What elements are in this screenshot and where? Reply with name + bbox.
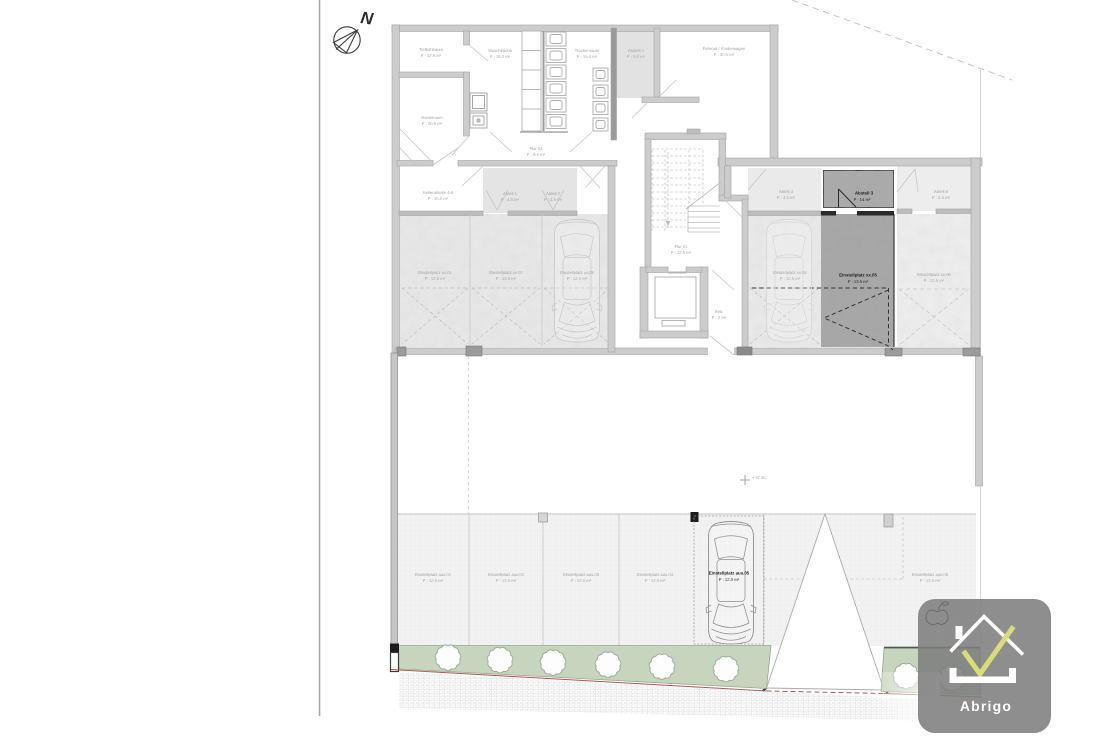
svg-text:Abteil 1: Abteil 1: [503, 191, 518, 196]
svg-text:F : 12.5 m²: F : 12.5 m²: [780, 276, 801, 281]
svg-text:F : 12.0 m²: F : 12.0 m²: [571, 578, 592, 583]
svg-text:F : 5.0 m²: F : 5.0 m²: [627, 54, 646, 59]
svg-text:Abteil 6: Abteil 6: [934, 189, 949, 194]
svg-text:Abstell 1: Abstell 1: [628, 48, 645, 53]
svg-text:F : 12.0 m²: F : 12.0 m²: [423, 578, 444, 583]
svg-text:Flur 04: Flur 04: [529, 146, 543, 151]
svg-text:F : 4.5 m²: F : 4.5 m²: [932, 195, 951, 200]
svg-text:Bastelraum: Bastelraum: [421, 115, 443, 120]
svg-text:Flur 01: Flur 01: [674, 244, 688, 249]
svg-text:F : 30.5 m²: F : 30.5 m²: [714, 52, 735, 57]
svg-text:Einstellplatz aus.06: Einstellplatz aus.06: [912, 572, 949, 577]
svg-text:F : 12.0 m²: F : 12.0 m²: [496, 578, 517, 583]
svg-text:F : 15.0 m²: F : 15.0 m²: [577, 54, 598, 59]
svg-text:Waschküche: Waschküche: [488, 48, 512, 53]
svg-text:F : 12.5 m²: F : 12.5 m²: [425, 276, 446, 281]
svg-text:F : 4.5 m²: F : 4.5 m²: [544, 197, 563, 202]
svg-text:Abrigo: Abrigo: [960, 698, 1012, 714]
svg-text:Abteil 4: Abteil 4: [779, 189, 794, 194]
svg-text:Abteil 2: Abteil 2: [546, 191, 561, 196]
svg-text:F : 18.0 m²: F : 18.0 m²: [490, 54, 511, 59]
svg-text:Einstellplatz xx.06: Einstellplatz xx.06: [917, 272, 951, 277]
svg-text:F : 12.5 m²: F : 12.5 m²: [496, 276, 517, 281]
svg-text:Einstellplatz aus.01: Einstellplatz aus.01: [415, 572, 452, 577]
svg-text:Einstellplatz aus.04: Einstellplatz aus.04: [637, 572, 674, 577]
svg-text:F : 12.0 m²: F : 12.0 m²: [920, 578, 941, 583]
svg-text:Fahrrad / Kinderwagen: Fahrrad / Kinderwagen: [703, 46, 746, 51]
svg-text:F : 9.5 m²: F : 9.5 m²: [527, 152, 546, 157]
svg-text:Red.: Red.: [715, 309, 724, 314]
svg-text:Einstellplatz aus.02: Einstellplatz aus.02: [488, 572, 525, 577]
svg-text:Einstellplatz xx.04: Einstellplatz xx.04: [773, 270, 807, 275]
svg-text:F : 13.5 m²: F : 13.5 m²: [848, 279, 869, 284]
svg-text:F : 4.5 m²: F : 4.5 m²: [501, 197, 520, 202]
svg-text:Einstellplatz aus.03: Einstellplatz aus.03: [563, 572, 600, 577]
svg-text:F : 12.0 m²: F : 12.0 m²: [719, 577, 740, 582]
svg-text:+ 47.30: + 47.30: [752, 475, 766, 480]
svg-text:Einstellplatz xx.02: Einstellplatz xx.02: [489, 270, 523, 275]
svg-text:Einstellplatz aus.05: Einstellplatz aus.05: [709, 571, 750, 576]
svg-text:F : 14 m²: F : 14 m²: [854, 197, 871, 202]
svg-text:F : 12.5 m²: F : 12.5 m²: [924, 278, 945, 283]
svg-text:Einstellplatz xx.03: Einstellplatz xx.03: [560, 270, 594, 275]
svg-text:Tiefkühlraum: Tiefkühlraum: [419, 47, 444, 52]
svg-text:F : 12.5 m²: F : 12.5 m²: [567, 276, 588, 281]
svg-text:F : 12.5 m²: F : 12.5 m²: [421, 53, 442, 58]
svg-text:F : 2 m²: F : 2 m²: [712, 315, 727, 320]
svg-text:F : 12.5 m²: F : 12.5 m²: [671, 250, 692, 255]
svg-text:F : 4.5 m²: F : 4.5 m²: [777, 195, 796, 200]
svg-text:Kellerabteile 4-6: Kellerabteile 4-6: [423, 190, 454, 195]
svg-text:Einstellplatz xx.01: Einstellplatz xx.01: [418, 270, 452, 275]
svg-text:F : 12.0 m²: F : 12.0 m²: [645, 578, 666, 583]
svg-text:Einstellplatz xx.05: Einstellplatz xx.05: [839, 273, 877, 278]
svg-text:Abstell 3: Abstell 3: [855, 191, 874, 196]
svg-text:F : 10.0 m²: F : 10.0 m²: [428, 196, 449, 201]
svg-text:Trockenraum: Trockenraum: [575, 48, 600, 53]
svg-text:F : 20.0 m²: F : 20.0 m²: [422, 121, 443, 126]
